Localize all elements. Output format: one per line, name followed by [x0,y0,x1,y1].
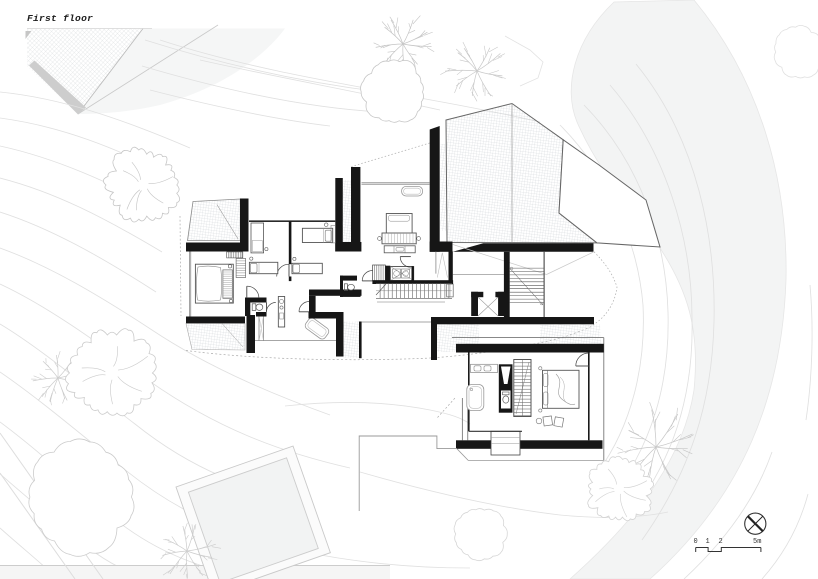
svg-text:2: 2 [719,538,723,546]
svg-text:0: 0 [694,538,698,546]
svg-text:1: 1 [706,538,710,546]
svg-text:5m: 5m [753,538,761,546]
